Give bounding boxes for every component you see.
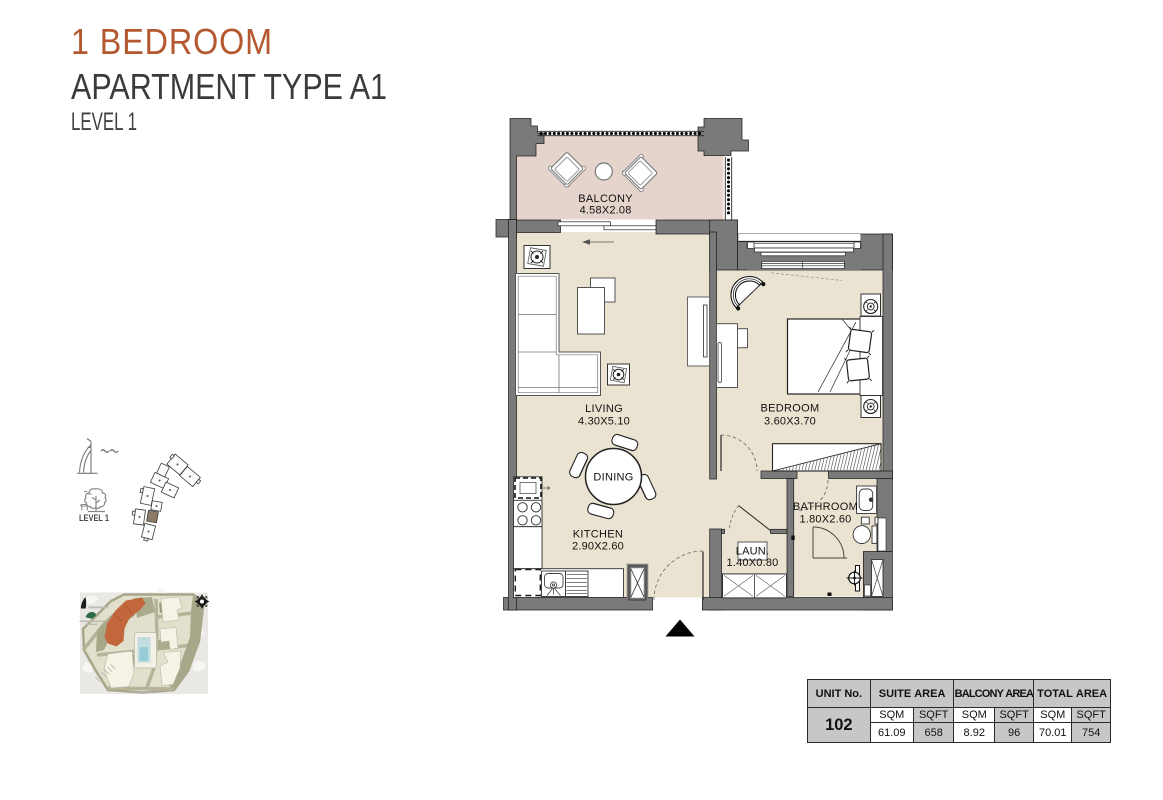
svg-text:LAUN.: LAUN. <box>736 546 769 558</box>
svg-text:4.58X2.08: 4.58X2.08 <box>580 205 632 217</box>
svg-text:DINING: DINING <box>593 472 633 484</box>
svg-text:KITCHEN: KITCHEN <box>573 529 623 541</box>
svg-text:APARTMENT TYPE A1: APARTMENT TYPE A1 <box>71 66 387 107</box>
svg-text:LEVEL 1: LEVEL 1 <box>71 108 137 136</box>
svg-text:3.60X3.70: 3.60X3.70 <box>764 416 816 428</box>
svg-text:BATHROOM: BATHROOM <box>793 501 858 513</box>
svg-text:2.90X2.60: 2.90X2.60 <box>572 541 624 553</box>
svg-text:4.30X5.10: 4.30X5.10 <box>578 416 630 428</box>
svg-text:LEVEL 1: LEVEL 1 <box>79 513 110 524</box>
svg-text:LIVING: LIVING <box>585 403 623 415</box>
svg-text:1.40X0.80: 1.40X0.80 <box>727 557 779 569</box>
svg-text:BALCONY: BALCONY <box>578 193 633 205</box>
svg-text:1 BEDROOM: 1 BEDROOM <box>71 21 273 62</box>
svg-text:1.80X2.60: 1.80X2.60 <box>800 514 852 526</box>
svg-text:BEDROOM: BEDROOM <box>761 403 820 415</box>
